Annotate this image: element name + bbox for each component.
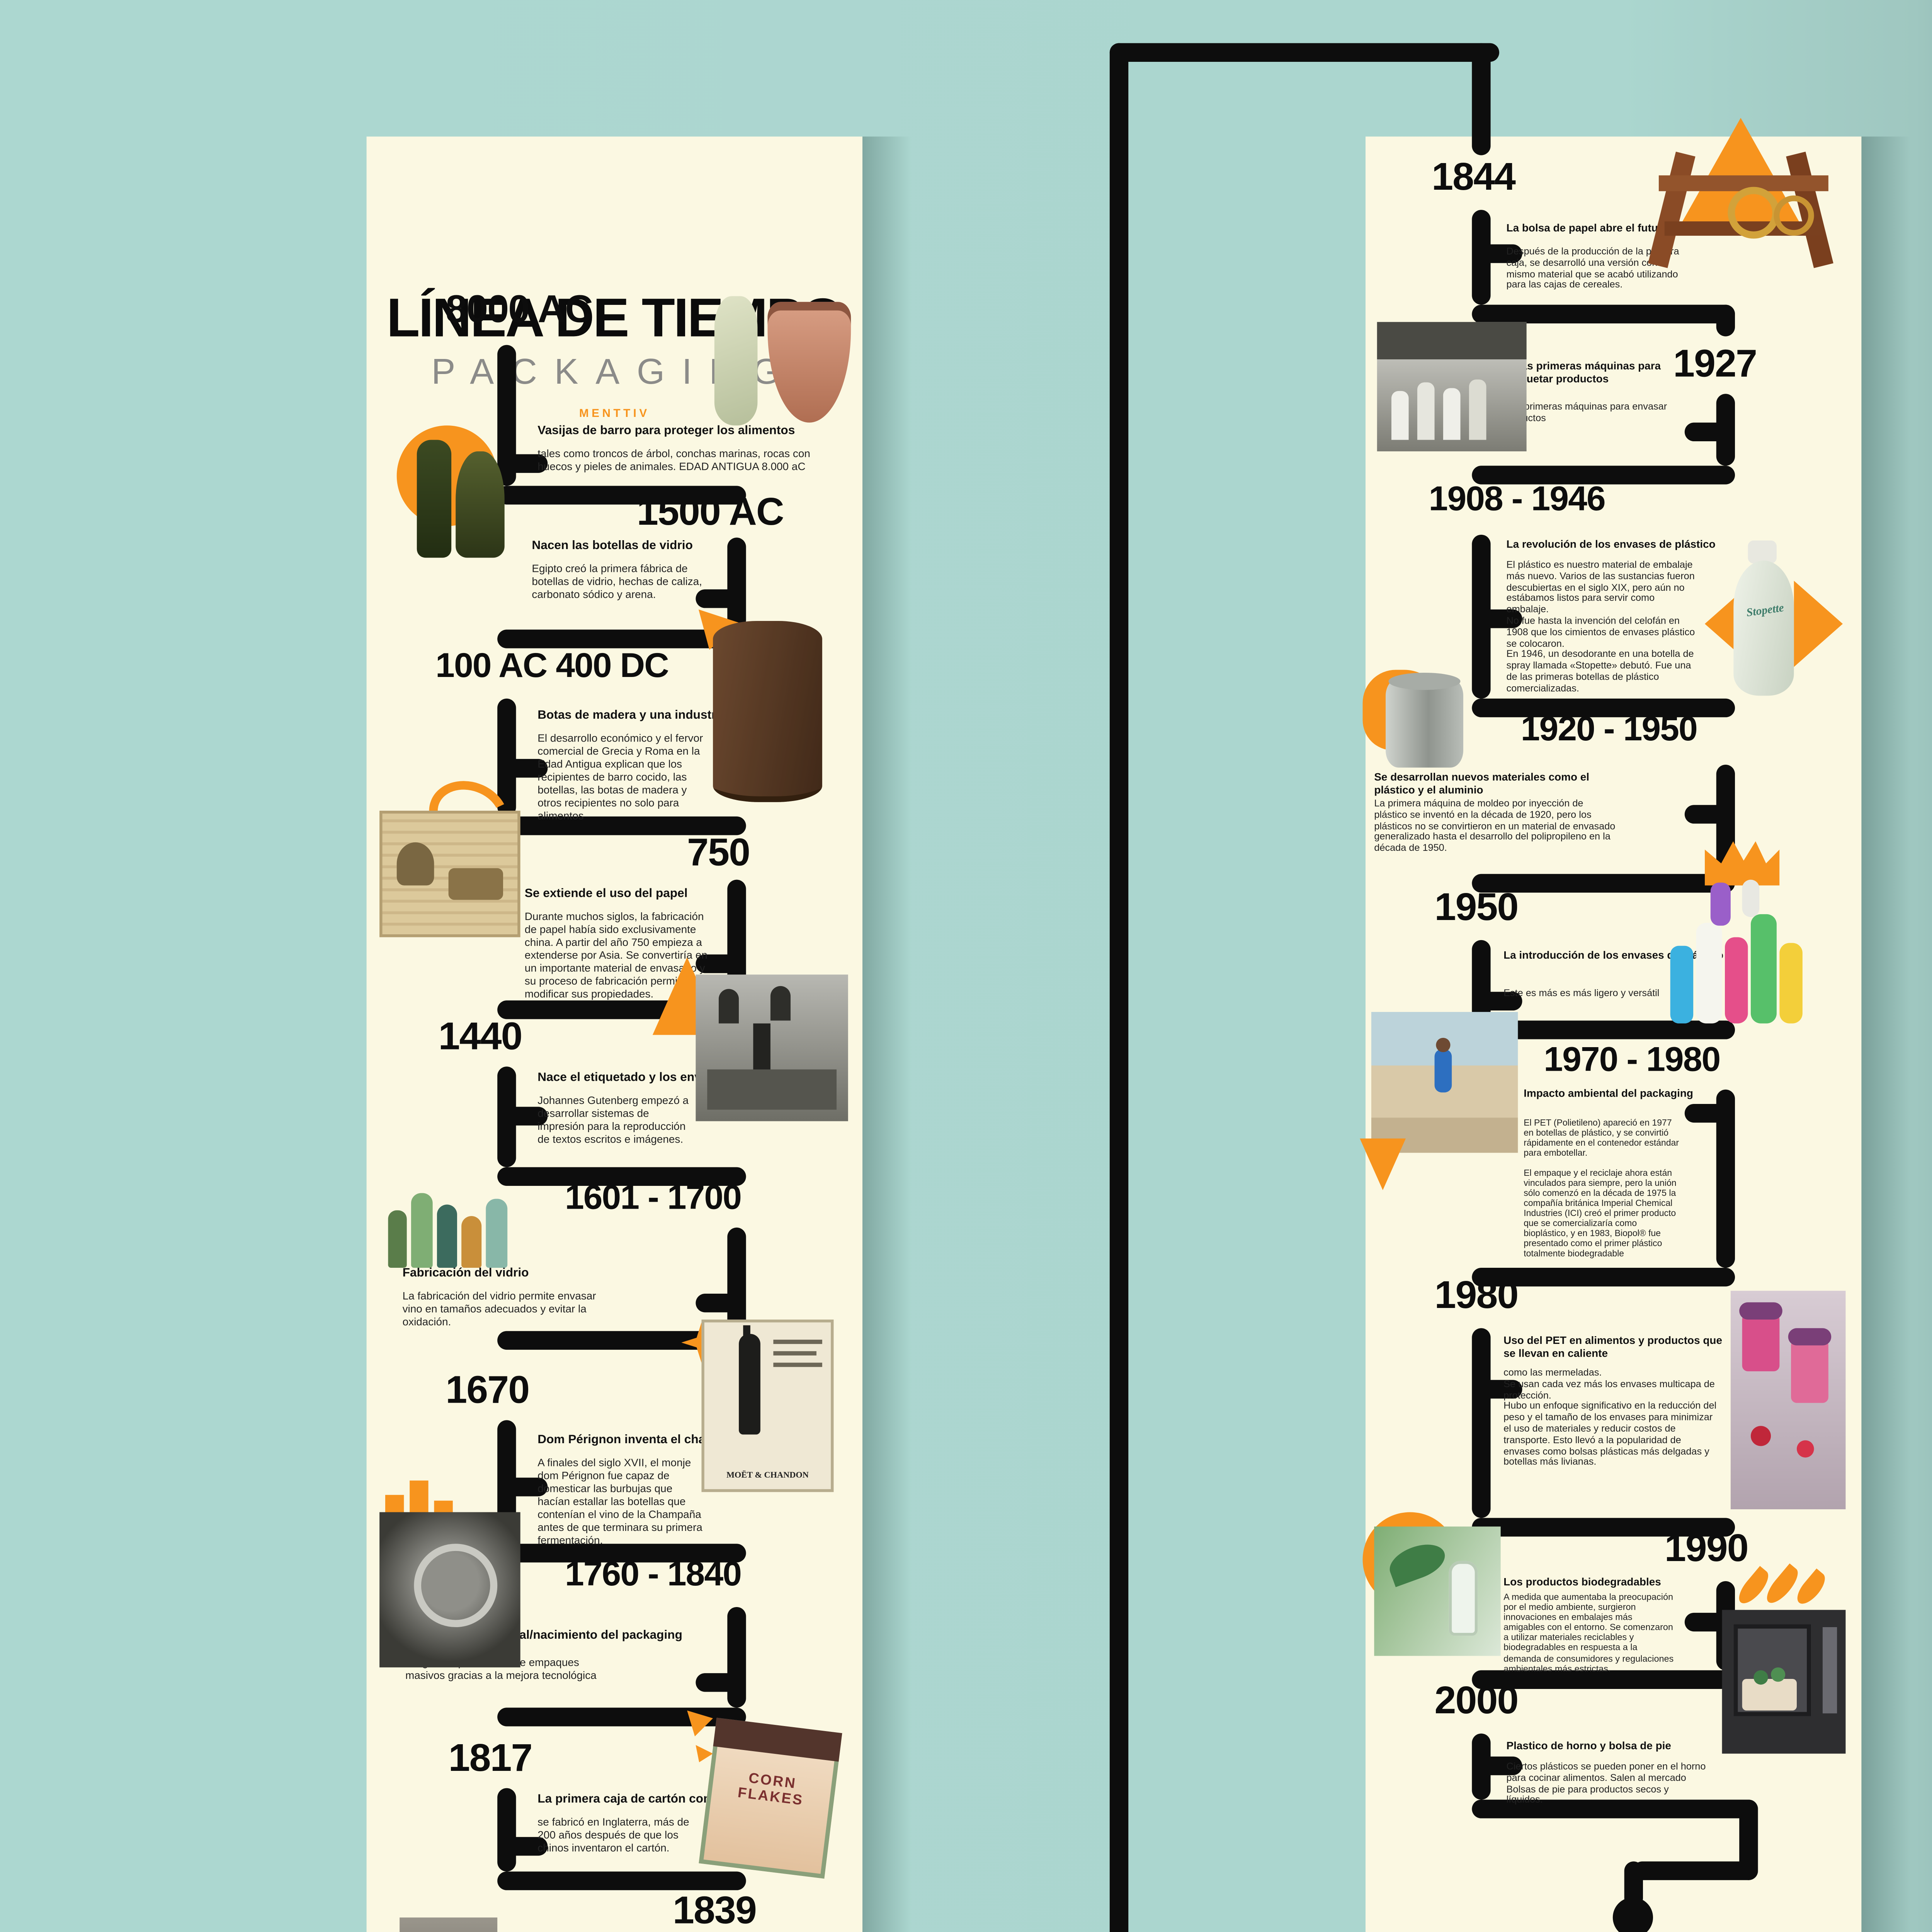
event-body: El plástico es nuestro material de embal…	[1507, 561, 1696, 695]
event-date-8000ac: 8000 AC	[446, 287, 592, 332]
wooden-cask-image	[713, 621, 822, 802]
event-date-1601-1700: 1601 - 1700	[565, 1179, 741, 1219]
timeline-segment	[727, 1607, 746, 1708]
timeline-segment	[1716, 305, 1735, 337]
timeline-segment	[1472, 43, 1490, 155]
event-body: A finales del siglo XVII, el monje dom P…	[537, 1456, 707, 1546]
event-body: El PET (Polietileno) apareció en 1977 en…	[1524, 1118, 1682, 1259]
glass-vials-image	[388, 1187, 509, 1268]
beach-cleanup-photo-image	[1371, 1012, 1518, 1153]
timeline-connector-nub	[1685, 423, 1725, 441]
timeline-connector-nub	[1685, 1104, 1725, 1122]
green-glass-bottle-image	[456, 451, 504, 558]
biodegradable-packaging-photo-image	[1374, 1527, 1500, 1656]
event-heading: Vasijas de barro para proteger los alime…	[537, 423, 842, 437]
timeline-connector-nub	[1685, 805, 1725, 823]
timeline-segment	[497, 1871, 746, 1890]
timeline-segment	[727, 1228, 746, 1331]
event-date-1950: 1950	[1435, 886, 1518, 930]
event-body: tales como troncos de árbol, conchas mar…	[537, 447, 842, 473]
timeline-segment	[1110, 43, 1499, 62]
event-body: La fabricación del vidrio permite envasa…	[403, 1289, 618, 1328]
event-date-1670: 1670	[446, 1368, 529, 1413]
event-date-1980: 1980	[1435, 1274, 1518, 1318]
hot-fill-containers-photo-image	[1731, 1291, 1846, 1509]
event-date-1970-1980: 1970 - 1980	[1544, 1041, 1720, 1081]
papermaking-engraving-image	[379, 811, 520, 937]
event-date-1920-1950: 1920 - 1950	[1521, 710, 1697, 750]
timeline-segment	[1110, 43, 1128, 1932]
event-body: La primera máquina de moldeo por inyecci…	[1374, 799, 1616, 855]
event-date-750: 750	[687, 831, 750, 875]
goodyear-portrait-image	[400, 1917, 497, 1932]
event-date-1990: 1990	[1665, 1527, 1748, 1571]
event-heading: Se extiende el uso del papel	[525, 886, 812, 900]
event-body: Egipto creó la primera fábrica de botell…	[532, 562, 711, 601]
event-date-1760-1840: 1760 - 1840	[565, 1555, 741, 1595]
event-heading: Uso del PET en alimentos y productos que…	[1503, 1334, 1726, 1360]
event-date-1927: 1927	[1673, 342, 1757, 386]
timeline-segment	[1633, 1861, 1758, 1880]
event-date-100ac400dc: 100 AC 400 DC	[435, 647, 668, 687]
event-body: se fabricó en Inglaterra, más de 200 año…	[537, 1815, 699, 1854]
bottling-machine-photo-image	[1377, 322, 1527, 451]
event-heading: Se desarrollan nuevos materiales como el…	[1374, 770, 1616, 796]
event-body: como las mermeladas. Se usan cada vez má…	[1503, 1368, 1719, 1469]
infographic-canvas: LÍNEA DE TIEMPO PACKAGING MENTTIV 8000 A…	[0, 0, 1932, 1932]
industrial-revolution-photo-image	[379, 1512, 520, 1667]
pet-bottles-cluster-image	[1667, 880, 1823, 1024]
event-date-2000: 2000	[1435, 1679, 1518, 1723]
timeline-connector-nub	[1685, 1613, 1725, 1631]
event-body: El desarrollo económico y el fervor come…	[537, 731, 707, 822]
event-body: Ciertos plásticos se pueden poner en el …	[1507, 1762, 1708, 1807]
event-date-1817: 1817	[449, 1736, 532, 1781]
event-date-1500ac: 1500 AC	[637, 490, 784, 535]
paper-bag-machine-image	[1647, 138, 1840, 273]
stopette-bottle-image: Stopette	[1705, 541, 1843, 702]
green-glass-bottle-image	[417, 440, 451, 558]
microwave-photo-image	[1722, 1610, 1846, 1753]
aluminum-can-image	[1386, 679, 1463, 768]
champagne-ad-image: MOËT & CHANDON	[701, 1320, 833, 1492]
event-date-1844: 1844	[1432, 155, 1515, 200]
printing-press-engraving-image	[696, 975, 848, 1121]
timeline-connector-nub	[696, 1294, 736, 1312]
event-date-1908-1946: 1908 - 1946	[1429, 480, 1605, 520]
timeline-segment	[497, 1788, 516, 1872]
timeline-segment	[1472, 1328, 1490, 1518]
cornflakes-box-image: CORNFLAKES	[699, 1718, 842, 1879]
event-heading: Nacen las botellas de vidrio	[532, 537, 812, 552]
event-heading: Impacto ambiental del packaging	[1524, 1087, 1696, 1099]
event-body: A medida que aumentaba la preocupación p…	[1503, 1593, 1676, 1674]
event-date-1839: 1839	[673, 1889, 756, 1932]
timeline-connector-nub	[696, 1673, 736, 1692]
event-body: Johannes Gutenberg empezó a desarrollar …	[537, 1094, 693, 1146]
orange-flames-accent	[1745, 1561, 1831, 1607]
timeline-segment	[1472, 305, 1735, 323]
event-date-1440: 1440	[439, 1015, 522, 1059]
ancient-glass-vessel-image	[714, 296, 758, 425]
event-heading: Los productos biodegradables	[1503, 1575, 1705, 1588]
